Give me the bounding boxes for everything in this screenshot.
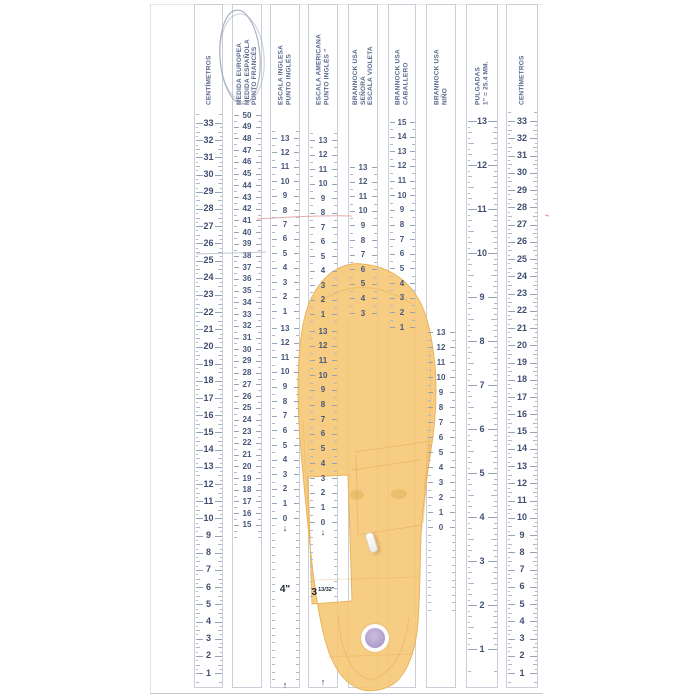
red-pen-mark xyxy=(257,216,352,219)
pen-circle-annotation xyxy=(217,8,267,105)
red-pen-tick xyxy=(545,215,549,216)
scanned-shoe-size-chart: CENTÍMETROS33323130292827262524232221201… xyxy=(0,0,700,700)
gray-pen-mark xyxy=(196,252,266,254)
purple-round-sticker xyxy=(365,628,385,648)
pen-annotations xyxy=(0,0,700,700)
